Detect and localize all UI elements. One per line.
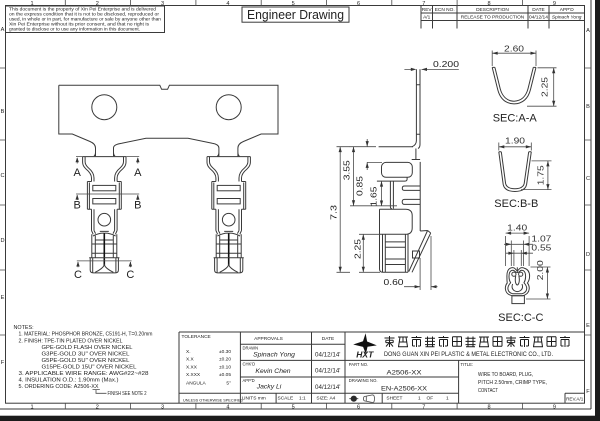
svg-text:F: F (1, 360, 5, 366)
svg-text:8: 8 (488, 1, 491, 7)
svg-text:E: E (586, 323, 590, 329)
svg-text:A: A (1, 27, 5, 33)
svg-text:1.75: 1.75 (537, 165, 546, 186)
svg-text:X.XX: X.XX (186, 364, 198, 370)
svg-text:C: C (586, 176, 590, 182)
svg-text:0.55: 0.55 (531, 243, 552, 252)
svg-text:1: 1 (418, 396, 421, 402)
svg-text:RELEASE TO PRODUCTION: RELEASE TO PRODUCTION (461, 14, 525, 20)
svg-text:±0.20: ±0.20 (219, 357, 231, 363)
svg-text:D: D (586, 252, 590, 258)
svg-text:X.X: X.X (186, 357, 195, 363)
svg-text:A/1: A/1 (423, 14, 431, 20)
svg-text:UNITS mm: UNITS mm (242, 396, 266, 402)
svg-text:X.: X. (186, 349, 191, 355)
svg-text:Engineer Drawing: Engineer Drawing (247, 7, 344, 22)
svg-text:2.25: 2.25 (541, 76, 550, 97)
svg-text:OF: OF (427, 396, 434, 402)
svg-text:Jacky Li: Jacky Li (256, 384, 282, 391)
svg-text:±0.30: ±0.30 (219, 349, 231, 355)
svg-text:granted to disclose or to use: granted to disclose or to use any inform… (9, 27, 140, 32)
svg-text:7.3: 7.3 (330, 204, 339, 220)
svg-text:9: 9 (553, 404, 556, 410)
svg-text:±0.05: ±0.05 (219, 372, 231, 378)
svg-text:4: 4 (226, 404, 229, 410)
svg-text:6: 6 (357, 1, 360, 7)
svg-text:NOTES:: NOTES: (14, 325, 34, 331)
svg-text:SIZE: A4: SIZE: A4 (316, 396, 335, 402)
svg-text:DRAWING NO.: DRAWING NO. (349, 378, 378, 383)
svg-text:SEC:C-C: SEC:C-C (498, 312, 543, 324)
svg-text:SEC:B-B: SEC:B-B (494, 198, 538, 210)
svg-text:0.85: 0.85 (355, 175, 364, 196)
svg-text:04/12/14': 04/12/14' (315, 385, 341, 391)
svg-text:E: E (1, 295, 5, 301)
svg-text:2. FINISH: TPE-TIN PLATED OVE: 2. FINISH: TPE-TIN PLATED OVER NICKEL (19, 338, 123, 344)
svg-text:DATE: DATE (532, 7, 544, 13)
svg-text:A: A (586, 28, 590, 34)
svg-text:7: 7 (422, 404, 425, 410)
svg-text:ANGULA: ANGULA (186, 380, 207, 386)
svg-text:Spinach Yong: Spinach Yong (552, 14, 582, 20)
svg-text:D: D (0, 238, 4, 244)
svg-text:F: F (586, 389, 590, 395)
svg-text:G5PE-GOLD 5U" OVER NICKEL: G5PE-GOLD 5U" OVER NICKEL (42, 358, 130, 364)
svg-text:1:1: 1:1 (299, 396, 306, 402)
svg-text:APP'D: APP'D (560, 7, 575, 13)
svg-text:B: B (1, 109, 5, 115)
svg-text:1: 1 (30, 404, 33, 410)
svg-text:REV.A/1: REV.A/1 (566, 397, 584, 402)
svg-text:HXT: HXT (356, 350, 374, 360)
svg-text:SEC:A-A: SEC:A-A (493, 113, 538, 125)
svg-text:PITCH 2.50mm, CRIMP TYPE,: PITCH 2.50mm, CRIMP TYPE, (478, 380, 547, 386)
svg-text:5°: 5° (226, 380, 231, 386)
svg-text:4: 4 (226, 1, 229, 7)
svg-text:SCALE: SCALE (278, 396, 294, 402)
svg-text:0.60: 0.60 (384, 278, 405, 287)
svg-text:Kevin Chen: Kevin Chen (255, 368, 290, 375)
svg-text:X.XXX: X.XXX (186, 372, 201, 378)
svg-text:1.90: 1.90 (505, 137, 526, 146)
svg-text:DRAWN: DRAWN (243, 345, 259, 350)
svg-text:2.25: 2.25 (354, 238, 363, 259)
svg-text:UNLESS OTHERWISE SPECIFIED: UNLESS OTHERWISE SPECIFIED (183, 399, 244, 403)
svg-text:±0.10: ±0.10 (219, 364, 231, 370)
svg-text:3. APPLICABLE WIRE RANGE: AWG: 3. APPLICABLE WIRE RANGE: AWG#22~#28 (19, 371, 149, 377)
svg-text:2: 2 (96, 404, 99, 410)
svg-text:1.40: 1.40 (507, 224, 528, 233)
svg-text:EN-A2506-XX: EN-A2506-XX (381, 386, 427, 392)
svg-text:APPROVALS: APPROVALS (254, 336, 283, 342)
svg-text:1. MATERIAL: PHOSPHOR BRONZE,: 1. MATERIAL: PHOSPHOR BRONZE, C5191-H, T… (19, 332, 153, 338)
svg-text:9: 9 (553, 1, 556, 7)
svg-text:5. ORDERING CODE: A2506-XX: 5. ORDERING CODE: A2506-XX (19, 384, 99, 390)
svg-text:FINISH SEE NOTE 2: FINISH SEE NOTE 2 (108, 391, 147, 397)
svg-text:2.00: 2.00 (536, 260, 545, 281)
svg-text:A: A (74, 167, 82, 179)
svg-text:Spinach Yong: Spinach Yong (253, 352, 295, 359)
svg-text:DATE: DATE (322, 336, 334, 342)
svg-text:7: 7 (422, 1, 425, 7)
svg-text:2.60: 2.60 (504, 44, 525, 53)
svg-text:REV: REV (422, 7, 433, 13)
svg-text:B: B (74, 200, 81, 212)
svg-text:1.65: 1.65 (370, 186, 379, 207)
svg-text:GPE-GOLD FLASH OVER NICKEL: GPE-GOLD FLASH OVER NICKEL (42, 345, 133, 351)
svg-text:6: 6 (357, 404, 360, 410)
svg-text:TOLERANCE: TOLERANCE (182, 334, 211, 340)
svg-text:SHEET: SHEET (386, 396, 402, 402)
svg-text:DESCRIPTION: DESCRIPTION (476, 7, 509, 13)
svg-text:04/12/14: 04/12/14 (529, 14, 548, 20)
svg-text:B: B (134, 200, 141, 212)
svg-text:ECN NO.: ECN NO. (435, 7, 455, 13)
svg-text:3: 3 (161, 404, 164, 410)
svg-text:04/12/14': 04/12/14' (315, 353, 341, 359)
svg-text:C: C (0, 173, 4, 179)
svg-text:CHK'D: CHK'D (243, 361, 256, 366)
svg-text:B: B (586, 104, 590, 110)
svg-text:C: C (74, 269, 82, 281)
svg-text:3.55: 3.55 (342, 160, 351, 181)
svg-text:4. INSULATION O.D.: 1.90mm (M: 4. INSULATION O.D.: 1.90mm (Max.) (19, 378, 119, 384)
svg-text:A2506-XX: A2506-XX (387, 370, 422, 376)
svg-text:04/12/14': 04/12/14' (315, 369, 341, 375)
svg-text:G15PE-GOLD 15U" OVER NICKEL: G15PE-GOLD 15U" OVER NICKEL (42, 365, 137, 371)
svg-text:CONTACT: CONTACT (478, 388, 499, 394)
svg-text:DONG GUAN XIN PEI PLASTIC & ME: DONG GUAN XIN PEI PLASTIC & METAL ELECTR… (384, 351, 553, 358)
svg-text:PART NO.: PART NO. (349, 362, 368, 367)
svg-text:WIRE TO BOARD, PLUG,: WIRE TO BOARD, PLUG, (478, 372, 533, 378)
svg-text:C: C (126, 269, 134, 281)
svg-text:8: 8 (488, 404, 491, 410)
svg-text:APP'D: APP'D (243, 378, 255, 383)
svg-text:A: A (134, 167, 142, 179)
svg-text:G3PE-GOLD 3U" OVER NICKEL: G3PE-GOLD 3U" OVER NICKEL (42, 351, 130, 357)
svg-text:TITLE:: TITLE: (461, 362, 474, 367)
svg-text:1: 1 (446, 396, 449, 402)
svg-text:5: 5 (292, 404, 295, 410)
svg-text:0.200: 0.200 (433, 60, 460, 69)
